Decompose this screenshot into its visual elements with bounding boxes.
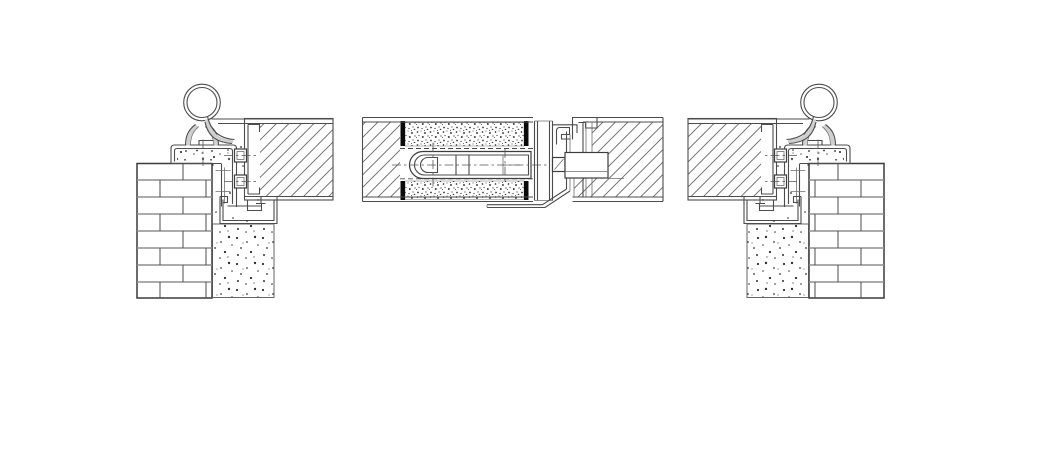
door-leaf-core-hatch — [689, 124, 762, 197]
active-leaf-core-hatch — [363, 122, 401, 197]
technical-drawing — [0, 0, 1052, 460]
door-leaf-core-hatch — [260, 124, 333, 197]
drawing-canvas — [0, 0, 1052, 460]
latch-bolt — [553, 158, 566, 172]
